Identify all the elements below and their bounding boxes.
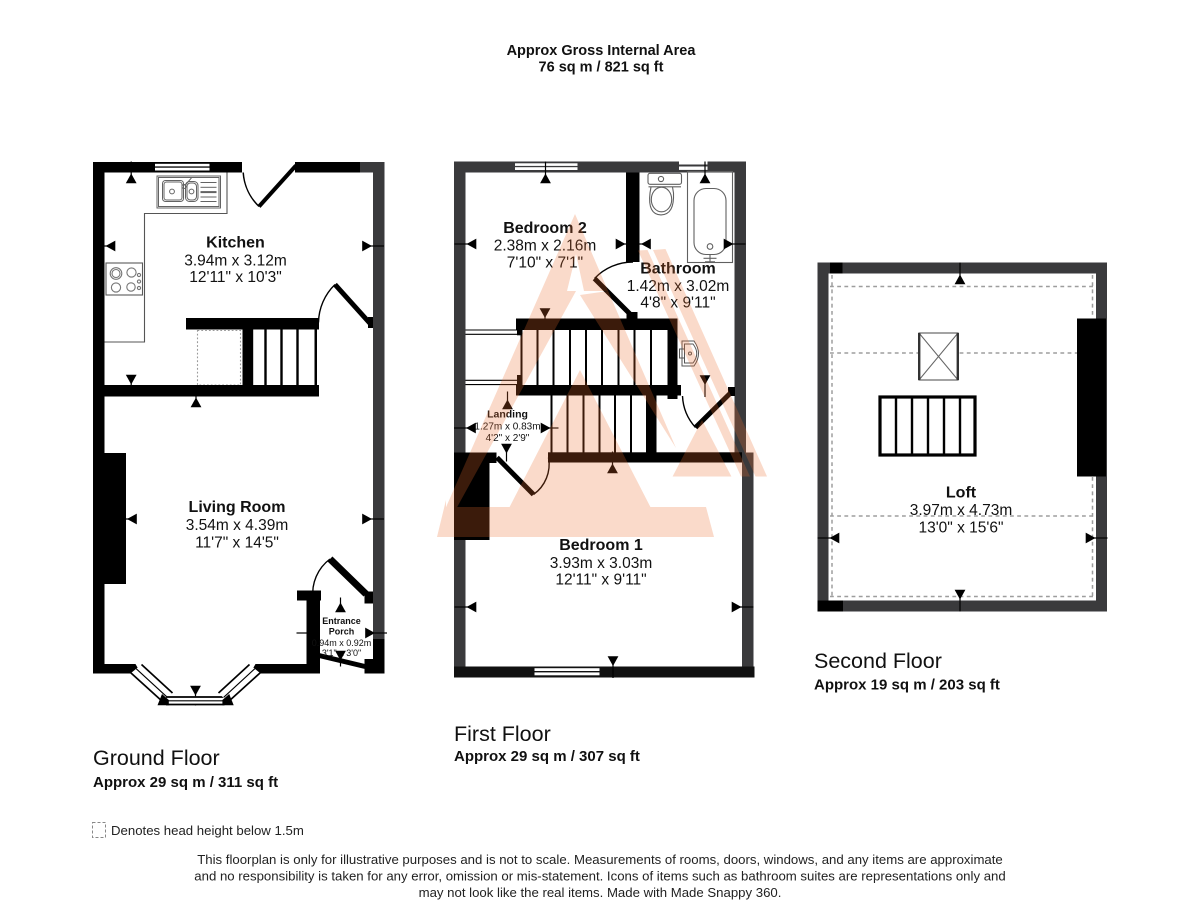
svg-text:and no responsibility is taken: and no responsibility is taken for any e… <box>194 869 1005 884</box>
svg-text:Bedroom 1: Bedroom 1 <box>559 537 643 554</box>
svg-text:3.94m x 3.12m: 3.94m x 3.12m <box>184 253 287 270</box>
svg-text:Entrance: Entrance <box>322 616 361 626</box>
svg-text:Loft: Loft <box>946 485 977 502</box>
svg-text:3.97m x 4.73m: 3.97m x 4.73m <box>910 502 1013 519</box>
svg-text:0.94m x 0.92m: 0.94m x 0.92m <box>312 638 372 648</box>
svg-text:Approx 29 sq m / 307 sq ft: Approx 29 sq m / 307 sq ft <box>454 748 640 765</box>
svg-text:First Floor: First Floor <box>454 722 551 746</box>
svg-text:may not look like the real ite: may not look like the real items. Made w… <box>419 885 782 900</box>
svg-text:Approx Gross Internal Area: Approx Gross Internal Area <box>507 43 697 59</box>
svg-text:12'11" x 10'3": 12'11" x 10'3" <box>189 269 281 286</box>
svg-text:Denotes head height below 1.5m: Denotes head height below 1.5m <box>111 823 304 838</box>
svg-text:Approx 29 sq m / 311 sq ft: Approx 29 sq m / 311 sq ft <box>93 774 278 791</box>
svg-text:3.54m x 4.39m: 3.54m x 4.39m <box>186 517 289 534</box>
svg-text:This floorplan is only for ill: This floorplan is only for illustrative … <box>197 852 1003 867</box>
svg-text:3.93m x 3.03m: 3.93m x 3.03m <box>550 555 653 572</box>
svg-text:13'0" x 15'6": 13'0" x 15'6" <box>918 520 1003 537</box>
svg-text:Porch: Porch <box>329 626 355 636</box>
svg-text:12'11" x 9'11": 12'11" x 9'11" <box>555 572 646 589</box>
svg-text:Ground Floor: Ground Floor <box>93 746 220 770</box>
svg-text:Living Room: Living Room <box>189 499 286 516</box>
svg-text:Second Floor: Second Floor <box>814 649 942 673</box>
svg-text:76 sq m / 821 sq ft: 76 sq m / 821 sq ft <box>539 60 664 76</box>
svg-text:Kitchen: Kitchen <box>206 235 265 252</box>
svg-text:Approx 19 sq m / 203 sq ft: Approx 19 sq m / 203 sq ft <box>814 677 1000 694</box>
svg-text:11'7" x 14'5": 11'7" x 14'5" <box>195 535 279 552</box>
